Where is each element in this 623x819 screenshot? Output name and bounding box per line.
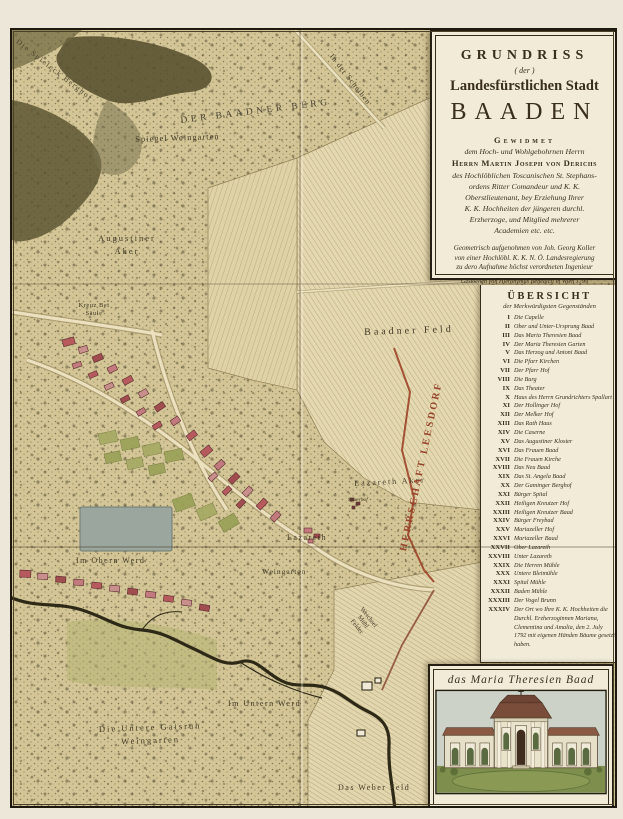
legend-subtitle: der Merkwürdigsten Gegenständen xyxy=(484,303,615,310)
legend-item-numeral: IX xyxy=(484,385,510,394)
legend-item-numeral: XV xyxy=(484,438,510,447)
surveyor-line: zu dero Aufnahme höchst verordneten Inge… xyxy=(436,263,613,273)
legend-item-name: Das Maria Theresien Baad xyxy=(514,332,615,341)
legend-item: XI Der Hollinger Hof xyxy=(484,402,615,411)
dedication-line: Oberstlieutenant, bey Erziehung Ihrer xyxy=(436,192,613,203)
legend-item: XXVII Ober Lazareth xyxy=(484,544,615,553)
maria-theresien-baad-engraving xyxy=(435,688,607,796)
dedication-line: des Hochlöblichen Toscanischen St. Steph… xyxy=(436,170,613,181)
legend-item: XXVI Mariazeller Baad xyxy=(484,535,615,544)
legend-item: XXXII Baden Mühle xyxy=(484,588,615,597)
legend-item-numeral: VII xyxy=(484,367,510,376)
legend-item-name: Die Capelle xyxy=(514,314,615,323)
legend-item-name: Der Hollinger Hof xyxy=(514,402,615,411)
legend-item-name: Spital Mühle xyxy=(514,579,615,588)
legend-item-name: Haus des Herrn Grundrichters Spallart xyxy=(514,394,615,403)
legend-item-name: Die Herren Mühle xyxy=(514,562,615,571)
legend-item: XV Das Augustiner Kloster xyxy=(484,438,615,447)
legend-item-numeral: XXIX xyxy=(484,562,510,571)
legend-item-numeral: XXVII xyxy=(484,544,510,553)
map-label-sauerhof: Sauerhof xyxy=(348,497,368,504)
legend-item: XVII Die Frauen Kirche xyxy=(484,456,615,465)
legend-item-numeral: XXIV xyxy=(484,517,510,526)
picture-caption: das Maria Theresien Baad xyxy=(434,674,608,686)
legend-item-name: Ober Lazareth xyxy=(514,544,615,553)
legend-item-name: Bürger Freybad xyxy=(514,517,615,526)
legend-item-name: Mariazeller Baad xyxy=(514,535,615,544)
legend-item-name: Bürger Spital xyxy=(514,491,615,500)
legend-item-numeral: XIV xyxy=(484,429,510,438)
legend-item: XII Der Melker Hof xyxy=(484,411,615,420)
legend-item-name: Unter Lazareth xyxy=(514,553,615,562)
legend-item-name: Die Burg xyxy=(514,376,615,385)
legend-item-numeral: IV xyxy=(484,341,510,350)
legend-item-name: Das Herzog und Antoni Baad xyxy=(514,349,615,358)
legend-item: IX Das Theater xyxy=(484,385,615,394)
map-label-weingarten: Weingarten xyxy=(262,567,306,576)
dedicatee-name: Herrn Martin Joseph von Derichs xyxy=(436,158,613,168)
legend-item-name: Das Neu Baad xyxy=(514,464,615,473)
legend-item-name: Ober und Unter-Ursprung Baad xyxy=(514,323,615,332)
legend-item-numeral: XXXII xyxy=(484,588,510,597)
legend-item: XXIV Bürger Freybad xyxy=(484,517,615,526)
surveyor-text: Geometrisch aufgenohmen von Joh. Georg K… xyxy=(436,244,613,273)
dedication-line: ordens Ritter Comandeur und K. K. xyxy=(436,181,613,192)
picture-panel: das Maria Theresien Baad xyxy=(428,664,614,808)
legend-item-numeral: XI xyxy=(484,402,510,411)
dedication-to: dem Hoch- und Wohlgebohrnen Herrn xyxy=(436,147,613,156)
legend-item-name: Heiligen Kreutzer Hof xyxy=(514,500,615,509)
legend-item-numeral: XXIII xyxy=(484,509,510,518)
legend-title: ÜBERSICHT xyxy=(484,291,615,302)
legend-item-numeral: XXII xyxy=(484,500,510,509)
dedication-line: Academien etc. etc. xyxy=(436,225,613,236)
surveyor-line: von einer Hochlöbl. K. K. N. Ö. Landesre… xyxy=(436,254,613,264)
legend-item-numeral: XVII xyxy=(484,456,510,465)
legend-item: XIX Das St. Angela Baad xyxy=(484,473,615,482)
map-label-weber-feld: Das Weber Feld xyxy=(338,783,410,793)
legend-item-numeral: XIX xyxy=(484,473,510,482)
legend-item-numeral: XIII xyxy=(484,420,510,429)
legend-item: XXV Mariazeller Hof xyxy=(484,526,615,535)
legend-item: IV Der Maria Theresien Garten xyxy=(484,341,615,350)
legend-item: VIII Die Burg xyxy=(484,376,615,385)
legend-item: I Die Capelle xyxy=(484,314,615,323)
legend-item: XXXIV Der Ort wo Ihre K. K. Hochheiten d… xyxy=(484,606,615,650)
legend-item-name: Das Rath Haus xyxy=(514,420,615,429)
map-label-untere-gaisruh: Die Untere Gaisruh Weingarten xyxy=(70,718,231,750)
map-label-im-obern-werd: Im Obern Werd xyxy=(76,556,145,566)
legend-item: XIII Das Rath Haus xyxy=(484,420,615,429)
legend-item: III Das Maria Theresien Baad xyxy=(484,332,615,341)
legend-item-name: Heiligen Kreutzer Baad xyxy=(514,509,615,518)
legend-item: VI Die Pfarr Kirchen xyxy=(484,358,615,367)
legend-item-numeral: II xyxy=(484,323,510,332)
legend-item: XXVIII Unter Lazareth xyxy=(484,553,615,562)
legend-item-numeral: XXXIII xyxy=(484,597,510,606)
legend-list: I Die Capelle II Ober und Unter-Ursprung… xyxy=(484,314,615,650)
legend-item: X Haus des Herrn Grundrichters Spallart xyxy=(484,394,615,403)
legend-item-name: Der Ort wo Ihre K. K. Hochheiten die Dur… xyxy=(514,606,615,650)
legend-item-name: Der Gaminger Berghof xyxy=(514,482,615,491)
legend-item-name: Mariazeller Hof xyxy=(514,526,615,535)
map-label-im-untern-werd: Im Untern Werd xyxy=(228,699,301,709)
title-cartouche: GRUNDRISS ( der ) Landesfürstlichen Stad… xyxy=(430,30,617,280)
map-sheet: Die Spieleck Berghof DER BAADNER BERG Sp… xyxy=(0,0,623,819)
legend-item-numeral: VIII xyxy=(484,376,510,385)
dedication-heading: Gewidmet xyxy=(436,135,613,145)
legend-item-numeral: XVIII xyxy=(484,464,510,473)
legend-item-name: Die Pfarr Kirchen xyxy=(514,358,615,367)
dedication-text: des Hochlöblichen Toscanischen St. Steph… xyxy=(436,170,613,236)
legend-item: XXII Heiligen Kreutzer Hof xyxy=(484,500,615,509)
map-label-kreuz-bet-saeule: Kreuz Bet Säule xyxy=(62,302,126,319)
map-title-der: ( der ) xyxy=(436,66,613,75)
legend-item: XXXIII Der Vogel Brunn xyxy=(484,597,615,606)
dedication-line: Erzherzoge, und Mitglied mehrerer xyxy=(436,214,613,225)
legend-item-numeral: XXVIII xyxy=(484,553,510,562)
map-title-city: BAADEN xyxy=(436,99,613,126)
legend-item-numeral: XXXIV xyxy=(484,606,510,650)
legend-item-name: Der Melker Hof xyxy=(514,411,615,420)
legend-item-numeral: XXI xyxy=(484,491,510,500)
legend-item: XIV Die Caserne xyxy=(484,429,615,438)
engraver-line: Gestochen von Hieronymus Benedicti in Wi… xyxy=(436,278,613,285)
legend-item-numeral: X xyxy=(484,394,510,403)
legend-item-name: Das St. Angela Baad xyxy=(514,473,615,482)
legend-item-numeral: VI xyxy=(484,358,510,367)
legend-item: V Das Herzog und Antoni Baad xyxy=(484,349,615,358)
legend-item-name: Der Maria Theresien Garten xyxy=(514,341,615,350)
legend-item-numeral: XXVI xyxy=(484,535,510,544)
legend-item: VII Der Pfarr Hof xyxy=(484,367,615,376)
surveyor-line: Geometrisch aufgenohmen von Joh. Georg K… xyxy=(436,244,613,254)
legend-item-numeral: XX xyxy=(484,482,510,491)
legend-item-numeral: XXX xyxy=(484,570,510,579)
dedication-line: K. K. Hochheiten der jüngeren durchl. xyxy=(436,203,613,214)
map-label-augustiner-aker: Augustiner Aker xyxy=(88,232,166,258)
map-title-line2: Landesfürstlichen Stadt xyxy=(436,78,613,95)
legend-item-name: Der Pfarr Hof xyxy=(514,367,615,376)
legend-item-numeral: III xyxy=(484,332,510,341)
legend-item-numeral: XXV xyxy=(484,526,510,535)
legend-item-numeral: XXXI xyxy=(484,579,510,588)
legend-item-name: Das Frauen Baad xyxy=(514,447,615,456)
legend-item-numeral: XVI xyxy=(484,447,510,456)
legend-item: XXI Bürger Spital xyxy=(484,491,615,500)
legend-panel: ÜBERSICHT der Merkwürdigsten Gegenstände… xyxy=(480,285,617,663)
legend-item: XXIX Die Herren Mühle xyxy=(484,562,615,571)
legend-item: XVIII Das Neu Baad xyxy=(484,464,615,473)
legend-item-name: Das Augustiner Kloster xyxy=(514,438,615,447)
legend-item: XX Der Gaminger Berghof xyxy=(484,482,615,491)
legend-item-name: Das Theater xyxy=(514,385,615,394)
legend-item: II Ober und Unter-Ursprung Baad xyxy=(484,323,615,332)
legend-item-numeral: I xyxy=(484,314,510,323)
map-label-lazareth: Lazareth xyxy=(287,533,327,543)
map-title: GRUNDRISS xyxy=(436,48,613,64)
title-cartouche-inner: GRUNDRISS ( der ) Landesfürstlichen Stad… xyxy=(435,35,614,275)
picture-panel-inner: das Maria Theresien Baad xyxy=(433,669,609,805)
legend-item: XXX Untere Bleimühle xyxy=(484,570,615,579)
legend-item-numeral: V xyxy=(484,349,510,358)
legend-item: XXIII Heiligen Kreutzer Baad xyxy=(484,509,615,518)
legend-item-numeral: XII xyxy=(484,411,510,420)
legend-item-name: Baden Mühle xyxy=(514,588,615,597)
map-canvas: Die Spieleck Berghof DER BAADNER BERG Sp… xyxy=(10,28,617,808)
legend-item-name: Die Caserne xyxy=(514,429,615,438)
legend-item-name: Die Frauen Kirche xyxy=(514,456,615,465)
legend-item-name: Der Vogel Brunn xyxy=(514,597,615,606)
legend-item: XXXI Spital Mühle xyxy=(484,579,615,588)
legend-item-name: Untere Bleimühle xyxy=(514,570,615,579)
legend-item: XVI Das Frauen Baad xyxy=(484,447,615,456)
